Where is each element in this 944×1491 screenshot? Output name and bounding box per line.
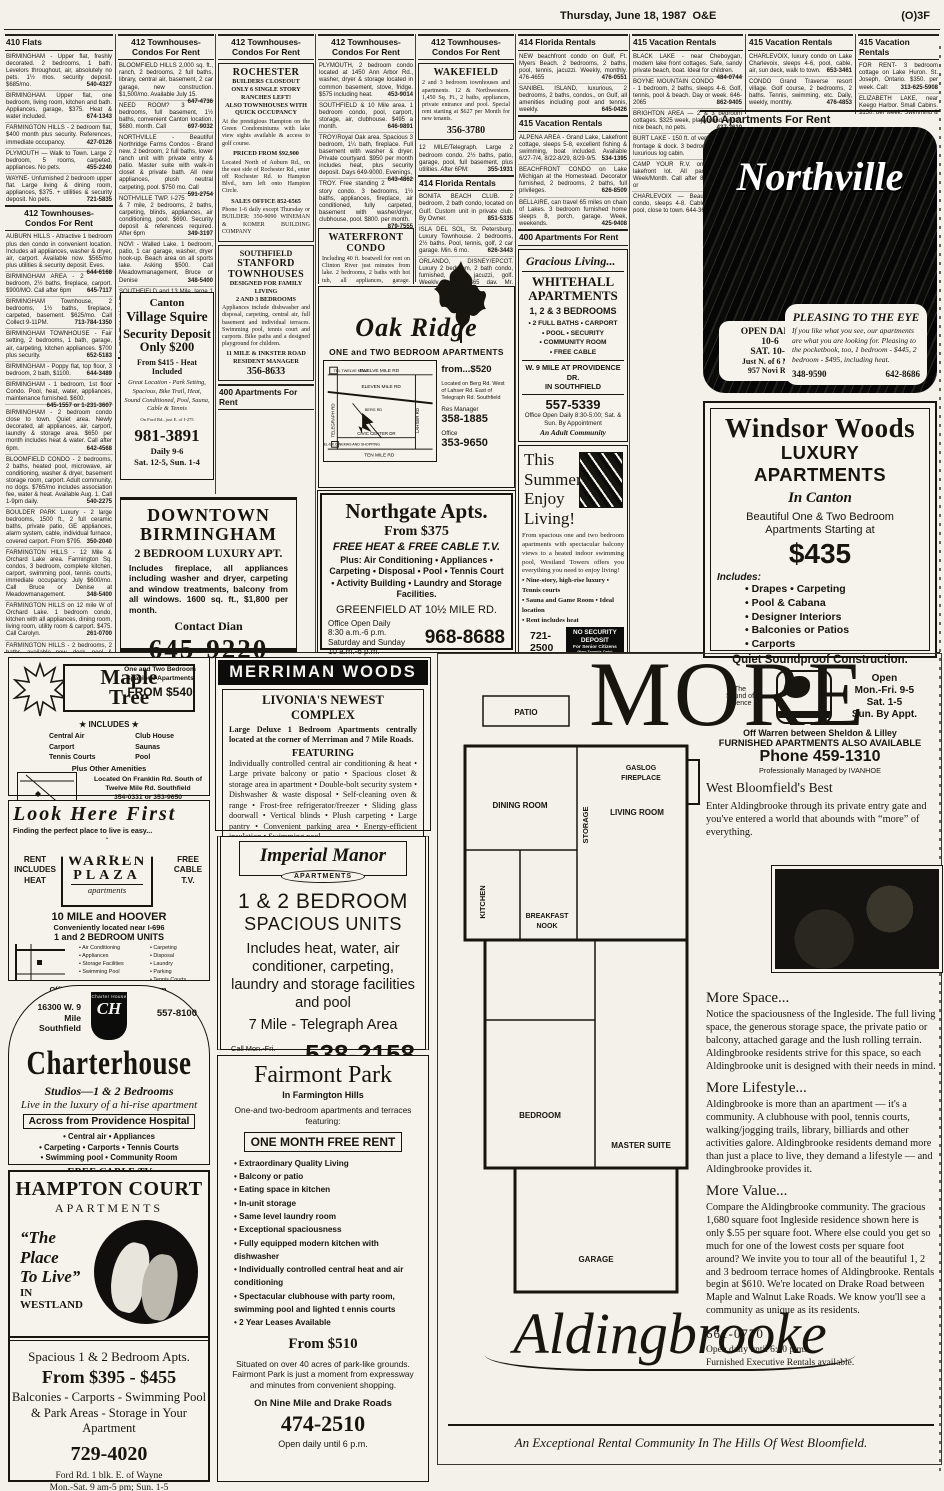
vacation-ads: FOR RENT- 3 bedroom cottage on Lake Huro… [858,61,939,114]
bullet-item: • Parking [150,968,207,976]
ad-body: Located North of Auburn Rd., on the east… [221,158,311,198]
section-heading-412: 412 Townhouses- Condos For Rent [418,34,514,60]
section-heading-400: 400 Apartments For Rent [218,384,314,410]
ad-price-line: From $415 - Heat Included [123,358,211,376]
ad-near-line: Conveniently located near I-696 [9,923,209,932]
best-heading: West Bloomfield's Best [706,780,938,796]
ad-features: Balconies - Carports - Swimming Pool & P… [10,1390,208,1437]
classified-ad: ISLA DEL SOL, St. Petersburg. Luxury Tow… [418,224,514,256]
classified-ad: BIRMINGHAM - 2 bedroom condo close to to… [5,404,113,454]
section-heading-412: 412 Townhouses- Condos For Rent [218,34,314,60]
ad-body: FARMINGTON HILLS - 12 Mile & Orchard Lak… [6,550,112,598]
ad-phone: 474-2510 [226,1411,420,1437]
ad-phone: 626-8509 [599,188,627,195]
classified-ad: CHARLEVOIX, luxury condo on Lake Charlev… [748,52,853,76]
ad-phone: 427-0126 [84,140,112,147]
featuring-label: FEATURING [229,748,417,759]
ad-phone: 476-0551 [599,75,627,82]
include-item: • Drapes • Carpeting [745,583,923,597]
ad-units: Spacious 1 & 2 Bedroom Apts. [10,1349,208,1365]
classified-ad: NORTHVILLE - Beautiful Northridge Farms … [118,132,214,193]
bullet-item: • Storage Facilities [79,960,136,968]
plan-label-living: LIVING ROOM [610,808,664,817]
map-label-ten-mile: TEN MILE RD [364,453,395,459]
classified-ad: FOR RENT- 3 bedroom cottage on Lake Huro… [858,61,939,92]
more-lifestyle-paragraph: Aldingbrooke is more than an apartment —… [706,1099,939,1177]
more-space-paragraph: Notice the spaciousness of the Ingleside… [706,1009,939,1074]
ad-hours: Open daily until 6 p.m. [226,1439,420,1449]
classified-ad: TROY. Free standing 2 story condo. 3 bed… [318,178,414,224]
ad-sales: SALES OFFICE 852-6565 [221,198,311,206]
ad-body: BLACK LAKE - near Cheboygan, modern lake… [633,54,742,74]
section-heading-415: 415 Vacation Rentals [748,34,853,51]
ad-units: One and Two Bedroom Spacious Apartments … [117,666,203,701]
ad-intro: One-and two-bedroom apartments and terra… [226,1105,420,1127]
ad-hours: Office Open Daily 8:30-5:00; Sat. & Sun.… [522,412,624,428]
warren-plaza-ad: Look Here First Finding the perfect plac… [8,800,210,981]
ad-subtitle: ONE and TWO BEDROOM APARTMENTS [319,347,514,357]
ad-phone: 476-4853 [824,100,852,107]
column-rule [415,34,416,282]
includes-list: • Drapes • Carpeting• Pool & Cabana• Des… [717,583,923,651]
ad-phone: 557-5339 [522,397,624,412]
classified-ad: NEW beachfront condo on Gulf, Ft. Myers … [518,52,628,83]
map-label-cinemas: TEL-EX CINEMAS AND SHOPPING [323,442,380,446]
ad-phone: 645-1557 or 1-231-3607 [44,403,112,410]
hampton-court-ad: HAMPTON COURT APARTMENTS “The Place To L… [8,1170,210,1482]
ad-city: SOUTHFIELD [221,249,311,258]
vacation-ads: ALPENA AREA - Grand Lake, Lakefront cott… [518,133,628,229]
more-lifestyle-heading: More Lifestyle... [706,1080,939,1097]
townhouse-ads: AUBURN HILLS - Attractive 1 bedroom plus… [5,232,113,652]
newspaper-page: Thursday, June 18, 1987 O&E (O)3F 410 Fl… [0,0,944,1491]
ad-subtitle: APARTMENTS [10,1201,208,1216]
classified-column-9: 415 Vacation Rentals FOR RENT- 3 bedroom… [858,34,939,114]
ad-address: 16300 W. 9 Mile Southfield [23,1002,81,1034]
ad-title3: apartments [71,884,143,895]
ad-features: • 2 FULL BATHS • CARPORT• POOL • SECURIT… [522,319,624,357]
ad-body: TROY/Royal Oak area. Spacious 3 bedroom,… [319,135,413,176]
entry-gate-photo [772,866,942,972]
ad-price: From $510 [226,1336,420,1353]
ad-script-header: Gracious Living... [522,254,624,272]
include-item: Carport [49,743,96,754]
waterfront-condo-ad: WATERFRONT CONDO Including 40 ft. boatwe… [318,228,414,284]
ad-line: BUILDERS CLOSEOUT [221,78,311,86]
classified-ad: BLACK LAKE - near Cheboygan, modern lake… [632,52,743,76]
classified-ad: SANIBEL ISLAND, luxurious, 2 bedrooms, 2… [518,83,628,115]
ad-line2: Live in the luxury of a hi-rise apartmen… [9,1099,209,1111]
ad-body: BIRMINGHAM - 2 bedroom condo close to to… [6,410,112,451]
ad-body: BLOOMFIELD CONDO - 2 bedrooms, 2 baths, … [6,457,112,505]
ad-location: 11 MILE & INKSTER ROAD [221,350,311,358]
masthead-rule [4,29,940,30]
vacation-ads: CHARLEVOIX, luxury condo on Lake Charlev… [748,52,853,109]
ad-features: Great Location - Park Setting, Spacious,… [123,379,211,414]
aldingbrooke-logo: Aldingbrooke [455,1300,885,1371]
bullet-item: Eating space in kitchen [234,1183,420,1196]
classified-ad: FARMINGTON HILLS on 12 mile W of Orchard… [5,600,113,639]
ad-bedrooms: 1, 2 & 3 BEDROOMS [522,306,624,316]
rent-includes-heat: RENT INCLUDES HEAT [13,855,57,886]
section-heading-412: 412 Townhouses- Condos For Rent [118,34,214,60]
ad-title: STANFORD [221,258,311,269]
florida-ads: NEW beachfront condo on Gulf, Ft. Myers … [518,52,628,116]
column-rule [515,34,516,652]
wakefield-ad: WAKEFIELD 2 and 3 bedroom townhouses and… [418,63,514,140]
ad-phone: 645-0426 [599,107,627,114]
classified-ad: BIRMINGHAM TOWNHOUSE - Fair setting, 2 b… [5,328,113,360]
classified-ad: BIRMINGHAM - Poppy flat, top floor, 3 be… [5,361,113,379]
classified-ad: BIRMINGHAM. Upper flat, one bedroom, liv… [5,90,113,122]
providence-hospital-line: Across from Providence Hospital [23,1114,195,1129]
location-map [15,944,65,980]
section-heading-400: 400 Apartments For Rent [518,229,628,246]
whitehall-ad: Gracious Living... WHITEHALLAPARTMENTS 1… [518,249,628,443]
ad-phone: 674-1343 [84,114,112,121]
location-map: TWELVE MILE RD ELEVEN MILE RD TEN MILE R… [323,360,437,462]
includes-left: Central AirCarportTennis Courts [49,732,96,764]
ad-phone: 348-5400 [185,278,213,285]
ad-line: QUICK OCCUPANCY [221,109,311,117]
ad-phone: 484-0744 [714,75,742,82]
bullet-item: Extraordinary Quality Living [234,1157,420,1170]
ad-body: NOVI - Walled Lake. 1 bedroom, patio, 1 … [119,242,213,283]
column-rule [115,34,116,652]
ad-bullets: Extraordinary Quality LivingBalcony or p… [226,1157,420,1330]
classified-column-1: 410 Flats BIRMINGHAM - Upper flat, fresh… [5,34,113,652]
plan-label-fireplace: FIREPLACE [621,775,661,782]
ad-phone: 642-4568 [84,446,112,453]
maple-leaf-icon [11,660,69,718]
section-heading-410-flats: 410 Flats [5,34,113,51]
ad-units-line1: 1 & 2 BEDROOM [229,890,417,914]
classified-ad: BEACHFRONT CONDO on Lake Michigan at the… [518,164,628,196]
column-rule [315,34,316,652]
classified-ad: BOULDER PARK Luxury - 2 large bedrooms, … [5,507,113,546]
ad-phone: 968-8688 [425,627,505,649]
ad-sub: DESIGNED FOR FAMILY LIVING [221,280,311,296]
section-heading-412: 412 Townhouses- Condos For Rent [318,34,414,60]
map-label-eleven-mile: ELEVEN MILE RD [361,384,401,390]
office-phone: 353-9650 [441,437,510,449]
bullet-item: 2 Year Leases Available [234,1316,420,1329]
maple-tree-ad: Maple Tree One and Two Bedroom Spacious … [8,657,210,796]
map-label-civic: CIVIC CENTER DR [357,431,395,436]
ad-phone: 591-2754 [185,192,213,199]
ad-phone: 348-5400 [84,592,112,599]
classified-ad: BLOOMFIELD HILLS 2,000 sq. ft., ranch, 2… [118,61,214,99]
bullet-item: Spectacular clubhouse with party room, s… [234,1290,420,1317]
ad-phone: 851-5335 [485,216,513,223]
ad-location: Located on Berg Rd. West of Lahser Rd. E… [441,381,510,401]
ad-headline: Security DepositOnly $200 [123,328,211,354]
ad-phone: 879-7555 [385,224,413,231]
classified-ad: PLYMOUTH — Walk to Town. Large 2 bedroom… [5,148,113,173]
ad-line: ONLY 6 SINGLE STORY [221,86,311,94]
flats-ads: BIRMINGHAM - Upper flat, freshly decorat… [5,52,113,205]
classified-ad: FARMINGTON HILLS - 2 bedrooms, 2 baths, … [5,640,113,652]
more-value-heading: More Value... [706,1183,939,1200]
ad-location: Located On Franklin Rd. South of Twelve … [93,776,203,802]
ad-phone: 350-2040 [84,539,112,546]
include-item: Tennis Courts [49,753,96,764]
look-here-first-title: Look Here First [9,801,209,826]
ad-phone: 425-9408 [599,221,627,228]
ad-body: Situated on over 40 acres of park-like g… [226,1359,420,1392]
ad-free-line: FREE HEAT & FREE CABLE T.V. [328,541,505,553]
bullet-item: In-unit storage [234,1197,420,1210]
ad-blurb: Beautiful One & Two Bedroom Apartments S… [717,511,923,537]
bullet-item: • Laundry [150,960,207,968]
bullet-item: Balcony or patio [234,1170,420,1183]
include-item: • Pool & Cabana [745,597,923,611]
plan-label-kitchen: KITCHEN [478,885,487,918]
ad-area: 7 Mile - Telegraph Area [229,1017,417,1033]
ad-phone: 653-3461 [824,68,852,75]
ad-phone: 729-4020 [10,1443,208,1466]
ad-phone: 721-5835 [84,197,112,204]
ad-features: Plus: Air Conditioning • Appliances • Ca… [328,555,505,601]
ad-body: Individually controlled central air cond… [229,759,417,843]
bullet-item: Individually controlled central heat and… [234,1263,420,1290]
classified-column-4: 412 Townhouses- Condos For Rent PLYMOUTH… [318,34,414,284]
column-rule [855,34,856,114]
ad-phone: 862-9405 [714,100,742,107]
classified-ad: WAYNE- Unfurnished 2 bedroom upper flat.… [5,173,113,205]
date-text: Thursday, June 18, 1987 [560,10,686,22]
ad-title: Windsor Woods [717,413,923,444]
ad-phone: 455-2240 [84,165,112,172]
ad-phone: 557-8100 [157,1008,197,1019]
ad-phone: 355-1931 [485,167,513,174]
page-number: (O)3F [901,10,930,22]
ad-phone-1: 348-9590 [792,369,827,379]
bullet-item: • Swimming Pool [79,968,136,976]
ad-title: HAMPTON COURT [10,1178,208,1201]
ad-sub2: 2 AND 3 BEDROOMS [221,296,311,304]
logo-top-text: Charter House [91,992,127,999]
map-label-berg: BERG RD [365,408,383,412]
charterhouse-ad: 16300 W. 9 Mile Southfield Charter House… [8,985,210,1165]
ad-price: from...$520 [441,364,510,375]
classified-ad: TROY/Royal Oak area. Spacious 3 bedroom,… [318,132,414,178]
bullet-item: • Carpeting [150,944,207,952]
feature-line: • COMMUNITY ROOM [522,338,624,348]
bullets-left: • Air Conditioning• Appliances• Storage … [65,944,136,985]
bullet-line: • Central air • Appliances [9,1132,209,1143]
ad-phone: 349-3197 [185,231,213,238]
bullet-item: • Air Conditioning [79,944,136,952]
ad-title: Northville [703,153,937,200]
column-rule [629,34,630,652]
classified-ad: BIRMINGHAM Townhouse, 2 bedrooms, 1½ bat… [5,296,113,328]
more-space-heading: More Space... [706,990,939,1007]
ad-body: At the prestigious Hampton on the Green … [221,117,311,150]
rochester-boxed-ad: ROCHESTER BUILDERS CLOSEOUTONLY 6 SINGLE… [218,63,314,242]
include-item: Saunas [135,743,174,754]
ad-body: NOTHVILLE TWP. I-275 & 7 mile, 2 bedroom… [119,196,213,237]
ad-phone: 261-0700 [84,631,112,638]
section-heading-400-large: 400 Apartments For Rent [700,110,940,126]
intro-paragraph: Enter Aldingbrooke through its private e… [706,800,938,840]
plan-label-dining: DINING ROOM [492,801,547,810]
ad-phone: 646-9891 [385,124,413,131]
ad-location: W. 9 MILE AT PROVIDENCE DR. IN SOUTHFIEL… [522,360,624,394]
plan-label-master: MASTER SUITE [611,1141,671,1150]
ad-body: 2 and 3 bedroom townhouses and apartment… [421,78,511,125]
ad-location: GREENFIELD AT 10½ MILE RD. [328,604,505,616]
ad-line: ALSO TOWNHOUSES WITH [221,102,311,110]
ad-body: AUBURN HILLS - Attractive 1 bedroom plus… [6,234,112,268]
ad-location: In Canton [717,490,923,507]
ad-hours: Office Open Daily 8:30 a.m.-6 p.m. Satur… [328,619,405,657]
section-heading-415: 415 Vacation Rentals [518,115,628,132]
ad-phone-2: 642-8686 [886,369,921,379]
ad-subtitle: Finding the perfect place to live is eas… [9,826,209,835]
classified-ad: PLYMOUTH, 2 bedroom condo located at 145… [318,61,414,99]
tennis-player-photo [579,452,623,508]
aldingbrooke-intro: West Bloomfield's Best Enter Aldingbrook… [706,780,938,840]
bullet-item: Same level laundry room [234,1210,420,1223]
plan-label-storage: STORAGE [581,807,590,844]
map-label-lahser: LAHSER RD [415,408,420,433]
column-rule [745,34,746,114]
classified-ad: BIRMINGHAM - Upper flat, freshly decorat… [5,52,113,90]
bullet-line: • Rent includes heat [522,616,624,626]
include-item: Pool [135,753,174,764]
includes-label: ★ INCLUDES ★ [9,720,209,729]
ad-phone: 626-3443 [485,248,513,255]
ad-price: $435 [717,538,923,570]
ad-title: Fairmont Park [226,1062,420,1089]
ad-adult-community: An Adult Community [522,428,624,437]
ad-quote: “The Place To Live” IN WESTLAND [20,1228,83,1330]
ad-phone: 713-784-1350 [72,320,112,327]
ad-title2: CONDO [321,243,411,254]
bullet-line: • Carpeting • Carports • Tennis Courts [9,1143,209,1154]
ad-units: 1 and 2 BEDROOM UNITS [9,932,209,942]
bullet-item: • Tennis Courts [150,976,207,984]
include-item: Club House [135,732,174,743]
map-label-mall: TEL TWELVE MALL [334,369,368,373]
ad-phone: 313-625-5908 [898,85,938,92]
ad-line: RANCHES LEFT! [221,94,311,102]
plan-label-bedroom: BEDROOM [519,1111,561,1120]
ad-title: Imperial Manor [240,845,406,867]
imperial-manor-ad: Imperial Manor APARTMENTS 1 & 2 BEDROOM … [217,836,429,1050]
ad-title: WHITEHALLAPARTMENTS [522,275,624,304]
classified-column-8: 415 Vacation Rentals CHARLEVOIX, luxury … [748,34,853,114]
townhouse-ads: 12 MILE/Telegraph. Large 2 bedroom condo… [418,143,514,174]
northville-ad: Northville OPEN DAILY 10-6 SAT. 10-5 Jus… [703,127,937,393]
canton-village-squire-ad: Canton Village Squire Security DepositOn… [120,292,214,480]
plan-label-nook: NOOK [537,923,558,930]
merriman-woods-ad: MERRIMAN WOODS LIVONIA'S NEWEST COMPLEX … [215,657,431,831]
classified-column-6: 414 Florida Rentals NEW beachfront condo… [518,34,628,652]
ad-subtitle: LUXURY APARTMENTS [717,442,923,486]
ad-phone: 981-3891 [123,426,211,446]
ad-roads: On Nine Mile and Drake Roads [226,1398,420,1409]
westland-towers-ad: This Summer, Enjoy Living! From spacious… [518,445,628,652]
bullet-item: • Disposal [150,952,207,960]
res-manager-phone: 358-1885 [441,413,510,425]
classified-ad: 12 MILE/Telegraph. Large 2 bedroom condo… [418,143,514,174]
ad-headline: LIVONIA'S NEWEST COMPLEX [229,693,417,723]
classified-column-3: 412 Townhouses- Condos For Rent ROCHESTE… [218,34,314,652]
oak-leaf-icon [426,259,496,345]
free-cable: FREE CABLE T.V. [169,855,207,886]
section-heading-414: 414 Florida Rentals [518,34,628,51]
ad-line1: Studios—1 & 2 Bedrooms [9,1084,209,1099]
bullet-item: Fully equipped modern kitchen with dishw… [234,1237,420,1264]
ad-title: Charterhouse [9,1044,209,1083]
bullets-right: • Carpeting• Disposal• Laundry• Parking•… [136,944,207,985]
ad-title: Village Squire [123,309,211,325]
ad-body: BIRMINGHAM - 1 bedroom, 1st floor Condo.… [6,382,112,402]
classified-ad: NOTHVILLE TWP. I-275 & 7 mile, 2 bedroom… [118,193,214,239]
plan-label-garage: GARAGE [578,1255,614,1264]
ad-phone: 652-5183 [84,353,112,360]
office-label: Office [441,430,510,437]
ad-phone: 356-3780 [421,125,511,136]
ad-phone: 697-9032 [185,124,213,131]
bullet-line: • Sauna and Game Room • Ideal location [522,596,624,616]
ad-body: From spacious one and two bedroom apartm… [522,532,624,576]
feature-line: • FREE CABLE [522,348,624,358]
classified-ad: BELLAIRE, can travel 65 miles on chain o… [518,197,628,229]
northgate-ad: Northgate Apts. From $375 FREE HEAT & FR… [320,493,513,650]
townhouse-ads: PLYMOUTH, 2 bedroom condo located at 145… [318,61,414,225]
publication-name: O&E [692,10,716,22]
classified-ad: NOVI - Walled Lake. 1 bedroom, patio, 1 … [118,239,214,285]
ad-body: NORTHVILLE - Beautiful Northridge Farms … [119,135,213,191]
includes-right: Club HouseSaunasPool [135,732,174,764]
ad-bullets: • Central air • Appliances• Carpeting • … [9,1132,209,1164]
ad-phone: 540-4327 [84,82,112,89]
bullet-item: • Appliances [79,952,136,960]
ad-title: Northgate Apts. [328,499,505,524]
ad-price: From $395 - $455 [10,1367,208,1388]
ad-city: Canton [123,297,211,309]
ad-phone: 647-4736 [185,99,213,106]
map-label-telegraph: TELEGRAPH RD [330,404,335,438]
warren-plaza-sign: WARREN PLAZA apartments [61,837,153,907]
classified-ad: BLOOMFIELD CONDO - 2 bedrooms, 2 baths, … [5,454,113,508]
ad-phone: 644-6168 [84,270,112,277]
ad-body: Phone 1-6 daily except Thursday or BUILD… [221,205,311,238]
ad-intro: Large Deluxe 1 Bedroom Apartments centra… [229,725,417,746]
ad-phone: 645-7117 [84,288,112,295]
ad-subtitle: In Farmington Hills [226,1090,420,1100]
date-line: Thursday, June 18, 1987 O&E [560,10,716,22]
classified-ad: FARMINGTON HILLS - 2 bedroom flat, $400 … [5,122,113,147]
ad-body: If you like what you see, our apartments… [792,326,920,364]
ad-title: WAKEFIELD [421,67,511,78]
include-item: • Designer Interiors [745,611,923,625]
ad-phone: 453-9014 [385,92,413,99]
section-heading-415: 415 Vacation Rentals [858,34,939,60]
apartments-oval: APARTMENTS [281,870,365,883]
classified-ad: BIRMINGHAM - 1 bedroom, 1st floor Condo.… [5,379,113,404]
ad-body: Appliances include dishwasher and dispos… [221,303,311,350]
includes-label: Includes: [717,572,923,583]
ad-phone: 534-1395 [599,156,627,163]
res-manager-label: Res Manager [441,406,510,413]
section-heading-415: 415 Vacation Rentals [632,34,743,51]
ad-title: ROCHESTER [221,67,311,78]
in-westland: IN WESTLAND [20,1287,83,1311]
